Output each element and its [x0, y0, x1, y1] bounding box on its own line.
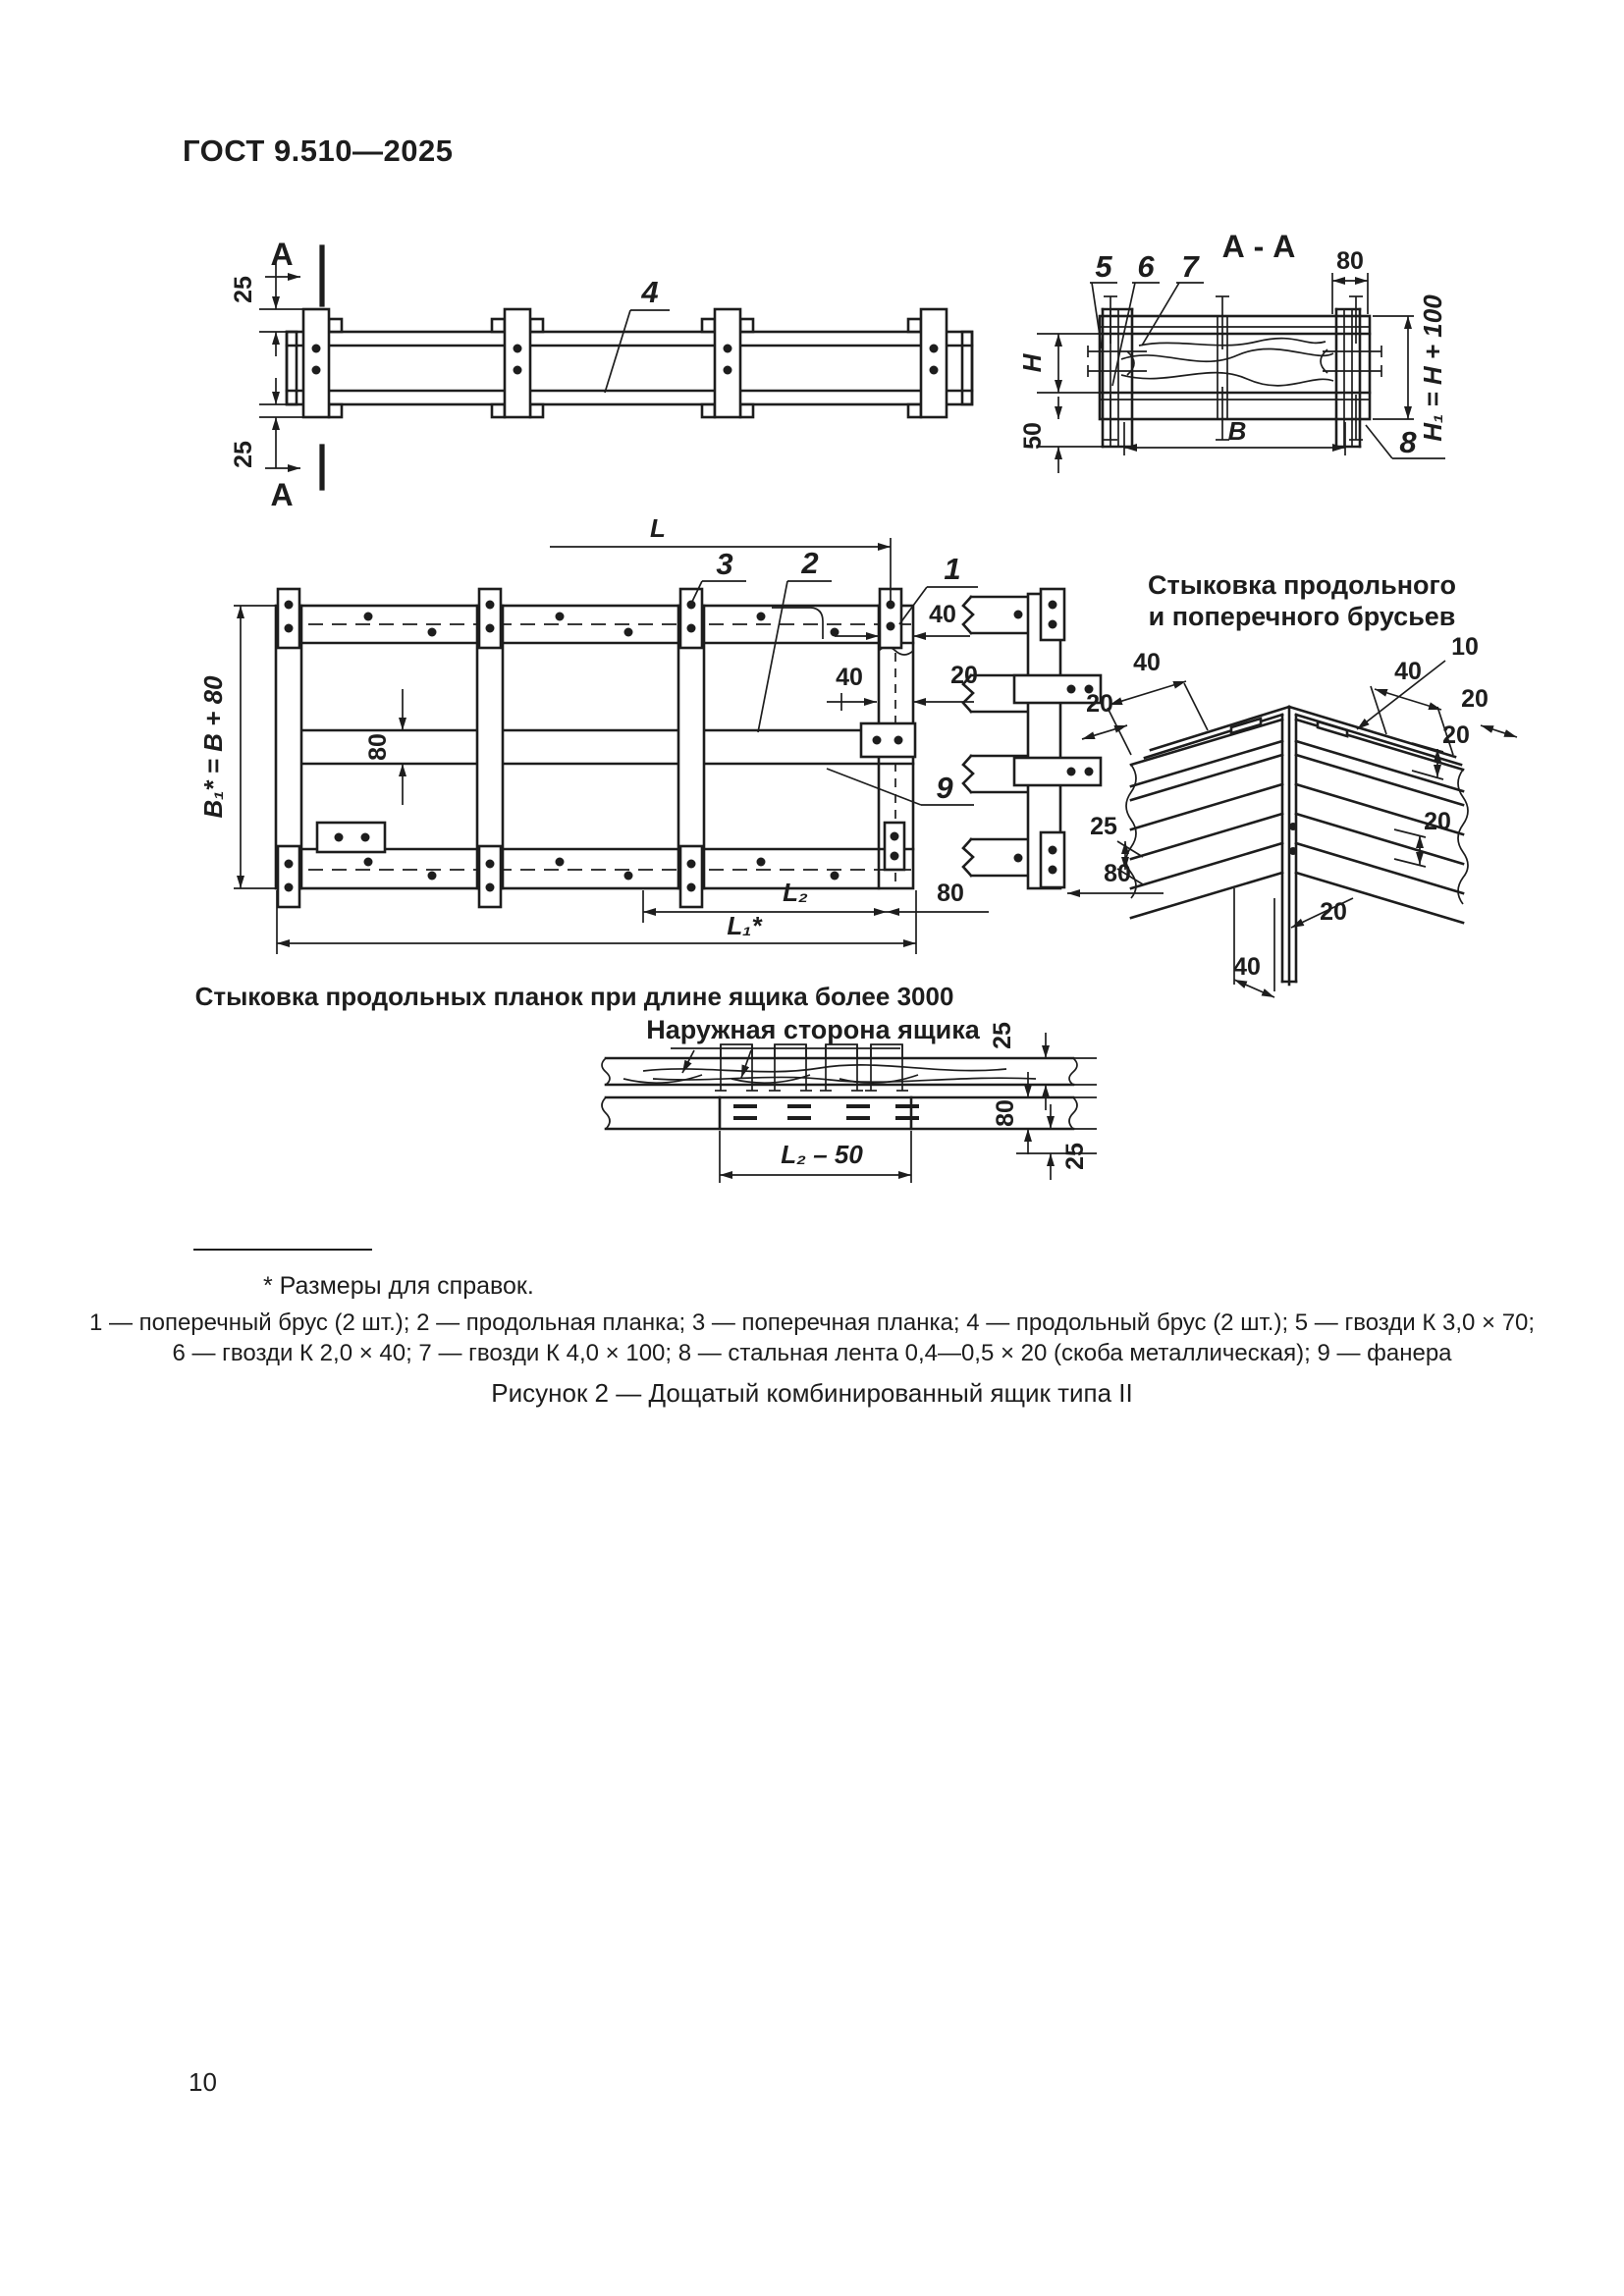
panel-plan-view-drawing: L 40 40 20 80 B₁* = B + 80 3: [147, 510, 1001, 962]
dim-label: L₂: [783, 878, 808, 907]
dim-label: В: [1228, 416, 1247, 446]
dim-label: 25: [230, 441, 257, 468]
part-number: 5: [1095, 249, 1112, 284]
legend-line-1: 1 — поперечный брус (2 шт.); 2 — продоль…: [76, 1308, 1548, 1338]
dim-H1: H₁ = H + 100: [1373, 294, 1447, 442]
parts-legend: 1 — поперечный брус (2 шт.); 2 — продоль…: [76, 1308, 1548, 1368]
dim-label: L: [650, 513, 666, 543]
dim-label: 80: [992, 1099, 1019, 1127]
dim-label: 20: [1320, 898, 1347, 926]
dim-B: В: [1124, 416, 1345, 455]
section-letter: А: [270, 237, 293, 272]
section-mark-top: А: [265, 237, 322, 304]
dim-80-mid: 80: [364, 689, 403, 805]
dim-label: 20: [1461, 685, 1489, 713]
legend-line-2: 6 — гвозди К 2,0 × 40; 7 — гвозди К 4,0 …: [76, 1338, 1548, 1368]
part-number: 6: [1137, 249, 1155, 284]
dim-label: 40: [1133, 649, 1161, 676]
part-number: 3: [716, 547, 732, 581]
part-number: 9: [936, 771, 953, 805]
beam-body: [287, 332, 972, 404]
dim-label: 10: [1451, 633, 1479, 661]
dim-label: H₁ = H + 100: [1418, 294, 1447, 442]
nail-dots: [364, 613, 839, 881]
dim-label: 40: [836, 664, 863, 691]
detail-title-line2: и поперечного брусьев: [1149, 602, 1456, 631]
top-board: [602, 1058, 1077, 1085]
section-aa-drawing: А - А: [1001, 187, 1591, 510]
dim-label: 20: [1424, 808, 1451, 835]
dim-label: 25: [989, 1022, 1016, 1049]
figure-caption: Рисунок 2 — Дощатый комбинированный ящик…: [76, 1378, 1548, 1409]
part-number: 8: [1399, 425, 1417, 459]
dim-label: 20: [1086, 690, 1113, 718]
part-number: 4: [640, 275, 658, 309]
dim-label: 40: [1394, 658, 1422, 685]
dim-80-top: 80: [1332, 247, 1368, 314]
section-title: А - А: [1222, 229, 1296, 264]
footnote-rule: [193, 1249, 372, 1251]
dim-label: H: [1017, 352, 1047, 372]
section-letter: А: [270, 477, 293, 512]
part-callout-4: 4: [605, 275, 670, 393]
dim-label: L₂ – 50: [781, 1140, 863, 1169]
dim-H: H: [1017, 334, 1100, 393]
part-number: 7: [1181, 249, 1200, 284]
dim-label: L₁*: [727, 911, 763, 940]
dim-label: 25: [230, 276, 257, 303]
footnote-text: * Размеры для справок.: [263, 1272, 534, 1301]
dim-label: 20: [1442, 721, 1470, 749]
detail-title: Наружная сторона ящика: [646, 1015, 981, 1044]
standard-number-header: ГОСТ 9.510—2025: [183, 133, 453, 169]
dim-label: 25: [1090, 813, 1117, 840]
dim-label: 80: [1336, 247, 1364, 275]
dim-B1: B₁* = B + 80: [198, 606, 278, 888]
corner-joint-detail-drawing: Стыковка продольного и поперечного брусь…: [1070, 545, 1624, 1016]
part-number: 2: [800, 546, 818, 580]
part-callout-6: 6: [1112, 249, 1160, 386]
dim-25-top: 25: [230, 258, 302, 356]
outer-dims: 25 80 25 L₂ – 50: [720, 1022, 1097, 1183]
dim-label: 25: [1061, 1143, 1089, 1170]
dim-L1: L₁*: [277, 890, 916, 954]
dim-label: 50: [1019, 422, 1047, 450]
beam-side-view-drawing: А А 25 25 4: [147, 211, 1001, 506]
detail-title-line1: Стыковка продольного: [1148, 570, 1456, 600]
dim-label: 80: [364, 733, 392, 761]
page-number: 10: [189, 2067, 217, 2098]
dim-label: 40: [1233, 953, 1261, 981]
part-callout-2: 2: [758, 546, 832, 732]
dim-label: 40: [929, 601, 956, 628]
dim-40-20-joint: 40 20: [827, 662, 978, 711]
isometric-corner: [1126, 707, 1468, 991]
broken-boards: [963, 597, 1028, 876]
dim-50: 50: [1019, 397, 1103, 473]
document-page: ГОСТ 9.510—2025: [0, 0, 1624, 2296]
outer-side-detail-drawing: Наружная сторона ящика: [584, 982, 1114, 1217]
dim-label: B₁* = B + 80: [198, 675, 228, 819]
part-callout-9: 9: [827, 769, 974, 805]
section-mark-bottom: А: [265, 447, 322, 512]
